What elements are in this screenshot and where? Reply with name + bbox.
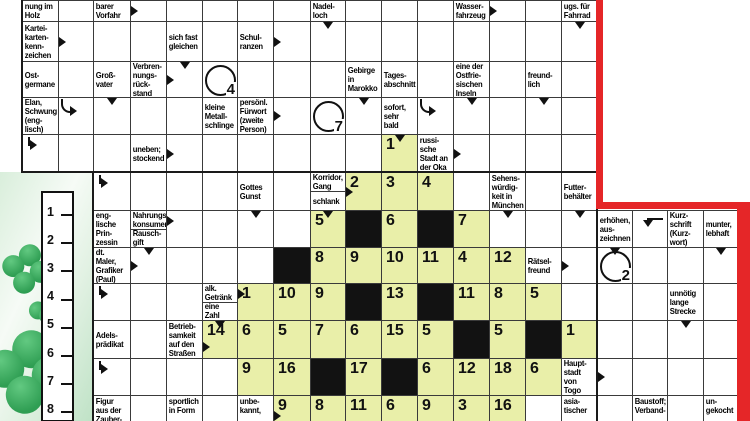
clue-cell: dt. Maler, Grafiker (Paul) (93, 247, 131, 284)
clue-text: unnötig lange Strecke (668, 288, 700, 317)
crossword-puzzle-page: 12345678 nung im Holznachweis- barer Vor… (0, 0, 750, 421)
answer-cell[interactable] (273, 61, 311, 98)
cell-number: 5 (530, 285, 539, 303)
number-cell[interactable]: 6 (345, 320, 382, 359)
cell-number: 9 (315, 285, 324, 303)
clue-cell: Kartei- karten- kenn- zeichen (22, 21, 59, 62)
answer-cell[interactable] (345, 97, 382, 135)
answer-cell[interactable] (417, 0, 454, 22)
answer-cell[interactable] (93, 358, 131, 396)
answer-cell[interactable] (166, 247, 203, 284)
answer-cell[interactable] (417, 97, 454, 135)
clue-text: Korridor, Gang (311, 173, 344, 192)
cell-number: 18 (494, 360, 512, 378)
answer-cell[interactable] (202, 134, 238, 173)
answer-cell[interactable] (632, 283, 668, 321)
answer-cell[interactable] (525, 21, 562, 62)
answer-cell[interactable] (166, 134, 203, 173)
clue-text: freund- lich (526, 70, 558, 90)
answer-cell[interactable] (130, 395, 167, 421)
answer-cell[interactable] (703, 320, 738, 359)
clue-text: Adels- prädikat (94, 330, 126, 350)
answer-cell[interactable] (202, 172, 238, 211)
arrow-right-icon (454, 149, 461, 159)
arrow-down-icon (107, 98, 117, 105)
clue-cell: Tages- abschnitt (381, 61, 418, 98)
clue-cell-split: Nahrungs- konsumentRausch- gift (130, 210, 167, 248)
answer-cell[interactable] (667, 395, 704, 421)
circle-marker-cell[interactable]: 2 (597, 247, 633, 284)
clue-cell: Wasser- fahrzeug (453, 0, 490, 22)
answer-cell[interactable] (703, 283, 738, 321)
arrow-curve-right-icon (61, 99, 83, 118)
clue-text: Rausch- gift (131, 230, 163, 248)
answer-cell[interactable] (130, 0, 167, 22)
clue-cell: Figur aus der Zauber- (93, 395, 131, 421)
answer-cell[interactable] (525, 210, 562, 248)
clue-cell: Rätsel- freund (525, 247, 562, 284)
answer-cell[interactable] (93, 172, 131, 211)
answer-cell[interactable] (166, 358, 203, 396)
answer-cell[interactable] (130, 172, 167, 211)
number-cell[interactable]: 5 (273, 320, 311, 359)
answer-cell[interactable] (237, 0, 274, 22)
answer-cell[interactable] (381, 0, 418, 22)
block-cell (273, 247, 311, 284)
answer-cell[interactable] (489, 97, 526, 135)
cell-number: 6 (386, 212, 395, 230)
answer-cell[interactable] (130, 320, 167, 359)
answer-cell[interactable] (489, 134, 526, 173)
solution-blank-line (61, 326, 72, 329)
cell-number: 9 (350, 249, 359, 267)
clue-text: Nahrungs- konsument (131, 211, 166, 230)
answer-cell[interactable] (632, 247, 668, 284)
answer-cell[interactable] (237, 61, 274, 98)
solution-number: 2 (47, 234, 57, 247)
number-cell[interactable]: 5 (417, 320, 454, 359)
solution-blank-line (61, 410, 72, 413)
block-cell (417, 283, 454, 321)
answer-cell[interactable] (202, 247, 238, 284)
answer-cell[interactable] (381, 21, 418, 62)
answer-cell[interactable] (166, 210, 203, 248)
number-cell[interactable]: 12 (489, 247, 526, 284)
cell-number: 7 (458, 212, 467, 230)
answer-cell[interactable] (489, 210, 526, 248)
arrow-right-icon (274, 37, 281, 47)
number-cell[interactable]: 14 (202, 320, 238, 359)
answer-cell[interactable] (310, 134, 346, 173)
answer-cell[interactable] (453, 134, 490, 173)
clue-text: Rätsel- freund (526, 256, 558, 276)
arrow-right-icon (131, 6, 138, 16)
arrow-down-icon (575, 211, 585, 218)
answer-cell[interactable] (273, 172, 311, 211)
arrow-right-icon (167, 216, 174, 226)
answer-cell[interactable] (22, 134, 59, 173)
clue-text: Groß- vater (94, 70, 126, 90)
answer-cell[interactable] (561, 134, 598, 173)
circle-number: 7 (334, 119, 344, 134)
circle-marker-cell[interactable]: 7 (310, 97, 346, 135)
answer-cell[interactable] (561, 97, 598, 135)
clue-text: Ost- germane (23, 70, 56, 90)
cell-number: 5 (494, 322, 503, 340)
clue-cell: kleine Metall- schlinge (202, 97, 238, 135)
clue-text: sportlich in Form (167, 396, 200, 416)
answer-cell[interactable] (130, 97, 167, 135)
answer-cell[interactable] (58, 134, 94, 173)
arrow-down-icon (323, 211, 333, 218)
answer-cell[interactable] (202, 358, 238, 396)
answer-cell[interactable] (273, 97, 311, 135)
clue-text: russi- sche Stadt an der Oka (418, 135, 450, 173)
answer-cell[interactable] (525, 0, 562, 22)
answer-cell[interactable] (130, 283, 167, 321)
answer-cell[interactable] (417, 61, 454, 98)
number-cell[interactable]: 1 (561, 320, 598, 359)
cell-number: 5 (422, 322, 431, 340)
answer-cell[interactable] (273, 0, 311, 22)
number-cell[interactable]: 6 (417, 358, 454, 396)
answer-cell[interactable] (237, 210, 274, 248)
cell-number: 11 (458, 285, 475, 303)
answer-cell[interactable] (561, 247, 598, 284)
answer-cell[interactable] (130, 21, 167, 62)
answer-cell[interactable] (632, 210, 668, 248)
arrow-down-icon (716, 248, 726, 255)
cell-number: 8 (315, 397, 324, 415)
clue-cell: munter, lebhaft (703, 210, 738, 248)
clue-cell: Kurz- schrift (Kurz- wort) (667, 210, 704, 248)
answer-cell[interactable] (597, 358, 633, 396)
solution-number: 7 (47, 375, 57, 388)
answer-cell[interactable] (166, 61, 203, 98)
clue-text: schlank (311, 196, 342, 207)
number-cell[interactable]: 5 (489, 320, 526, 359)
answer-cell[interactable] (597, 283, 633, 321)
number-cell[interactable]: 9 (310, 283, 346, 321)
answer-cell[interactable] (667, 358, 704, 396)
clue-text: Baustoff; Verband- (633, 396, 667, 416)
cell-number: 8 (315, 249, 324, 267)
answer-cell[interactable] (489, 61, 526, 98)
number-cell[interactable]: 7 (310, 320, 346, 359)
arrow-right-icon (167, 75, 174, 85)
clue-cell: Haupt- stadt von Togo (561, 358, 598, 396)
answer-cell[interactable] (58, 61, 94, 98)
answer-cell[interactable] (561, 21, 598, 62)
number-cell[interactable]: 6 (237, 320, 274, 359)
clue-cell: eine der Ostfrie- sischen Inseln (453, 61, 490, 98)
answer-cell[interactable] (237, 134, 274, 173)
clue-cell: unnötig lange Strecke (667, 283, 704, 321)
solution-item: 5 (43, 315, 72, 331)
number-cell[interactable]: 10 (273, 283, 311, 321)
block-cell (381, 358, 418, 396)
answer-cell[interactable] (667, 320, 704, 359)
cell-number: 12 (458, 360, 476, 378)
clue-cell: Baustoff; Verband- (632, 395, 668, 421)
answer-cell[interactable] (525, 134, 562, 173)
answer-cell[interactable] (130, 247, 167, 284)
cell-number: 15 (386, 322, 404, 340)
solution-item: 8 (43, 399, 72, 415)
cell-number: 6 (350, 322, 359, 340)
cell-number: 6 (530, 360, 539, 378)
clue-text: Kurz- schrift (Kurz- wort) (668, 210, 700, 248)
answer-cell[interactable] (703, 358, 738, 396)
answer-cell[interactable] (345, 134, 382, 173)
solution-item: 7 (43, 371, 72, 387)
solution-number: 4 (47, 290, 57, 303)
arrow-right-icon (598, 372, 605, 382)
answer-cell[interactable] (489, 0, 526, 22)
clue-text: uneben; stockend (131, 144, 165, 164)
answer-cell[interactable] (130, 358, 167, 396)
clue-cell-split: Korridor, Gangschlank (310, 172, 346, 211)
clue-cell: Gottes Gunst (237, 172, 274, 211)
answer-cell[interactable] (632, 320, 668, 359)
cell-number: 16 (494, 397, 512, 415)
answer-cell[interactable] (202, 0, 238, 22)
solution-blank-line (61, 213, 72, 216)
clue-text: Sehens- würdig- keit in München (490, 173, 524, 211)
answer-cell[interactable] (166, 0, 203, 22)
number-cell[interactable]: 11 (417, 247, 454, 284)
solution-blank-line (61, 269, 72, 272)
arrow-right-icon (274, 111, 281, 121)
number-cell[interactable]: 16 (489, 395, 526, 421)
number-cell[interactable]: 16 (273, 358, 311, 396)
answer-cell[interactable] (417, 21, 454, 62)
cell-number: 16 (278, 360, 296, 378)
cell-number: 7 (315, 322, 324, 340)
solution-number: 5 (47, 318, 57, 331)
answer-cell[interactable] (525, 395, 562, 421)
number-cell[interactable]: 17 (345, 358, 382, 396)
answer-cell[interactable] (93, 21, 131, 62)
answer-cell[interactable] (453, 21, 490, 62)
answer-cell[interactable] (58, 97, 94, 135)
number-cell[interactable]: 7 (453, 210, 490, 248)
answer-cell[interactable] (58, 0, 94, 22)
answer-cell[interactable] (703, 247, 738, 284)
answer-cell[interactable] (166, 283, 203, 321)
arrow-down-icon (215, 321, 225, 328)
arrow-right-icon (490, 6, 497, 16)
page-border-red-vertical (596, 0, 603, 209)
clue-cell: Adels- prädikat (93, 320, 131, 359)
answer-cell[interactable] (525, 97, 562, 135)
clue-text: un- gekocht (704, 396, 734, 416)
block-cell (417, 210, 454, 248)
answer-cell[interactable] (345, 0, 382, 22)
number-cell[interactable]: 10 (381, 247, 418, 284)
answer-cell[interactable] (273, 210, 311, 248)
cell-number: 12 (494, 249, 512, 267)
clue-text: eine Zahl (203, 303, 234, 321)
solution-blank-line (61, 382, 72, 385)
number-cell[interactable]: 15 (381, 320, 418, 359)
number-cell[interactable]: 9 (417, 395, 454, 421)
answer-cell[interactable] (202, 210, 238, 248)
clue-text: dt. Maler, Grafiker (Paul) (94, 247, 126, 284)
answer-cell[interactable] (489, 21, 526, 62)
solution-blank-line (61, 354, 72, 357)
clue-cell: Futter- behälter (561, 172, 598, 211)
arrow-right-icon (562, 261, 569, 271)
answer-cell[interactable] (632, 358, 668, 396)
arrow-down-icon (610, 248, 620, 255)
answer-cell[interactable] (561, 61, 598, 98)
arrow-right-icon (131, 261, 138, 271)
clue-cell: Nadel- loch (310, 0, 346, 22)
number-cell[interactable]: 6 (381, 210, 418, 248)
number-cell[interactable]: 11 (345, 395, 382, 421)
number-cell[interactable]: 6 (525, 358, 562, 396)
clue-text: Wasser- fahrzeug (454, 1, 486, 21)
solution-number: 6 (47, 347, 57, 360)
number-cell[interactable]: 13 (381, 283, 418, 321)
answer-cell[interactable] (202, 395, 238, 421)
arrow-right-icon (346, 187, 353, 197)
clue-cell: Gebirge in Marokko (345, 61, 382, 98)
circle-number: 2 (621, 268, 631, 283)
clue-cell: Ost- germane (22, 61, 59, 98)
block-cell (345, 283, 382, 321)
cell-number: 13 (386, 285, 404, 303)
cell-number: 6 (422, 360, 431, 378)
number-cell[interactable]: 8 (489, 283, 526, 321)
number-cell[interactable]: 11 (453, 283, 490, 321)
arrow-down-icon (144, 248, 154, 255)
number-cell[interactable]: 4 (417, 172, 454, 211)
answer-cell[interactable] (93, 134, 131, 173)
number-cell[interactable]: 18 (489, 358, 526, 396)
number-cell[interactable]: 5 (310, 210, 346, 248)
answer-cell[interactable] (273, 134, 311, 173)
block-cell (310, 358, 346, 396)
clue-text: nung im Holz (23, 1, 55, 21)
solution-blank-line (61, 241, 72, 244)
arrow-curve-right-icon (420, 99, 442, 118)
clue-text: sich fast gleichen (167, 32, 199, 52)
cell-number: 6 (242, 322, 251, 340)
clue-cell: asia- tischer (561, 395, 598, 421)
solution-item: 1 (43, 202, 72, 218)
cell-number: 9 (242, 360, 251, 378)
number-cell[interactable]: 4 (453, 247, 490, 284)
block-cell (525, 320, 562, 359)
arrow-bent-right-icon (97, 286, 113, 301)
answer-cell[interactable] (166, 172, 203, 211)
clue-text: Futter- behälter (562, 182, 594, 202)
answer-cell[interactable] (597, 395, 633, 421)
number-cell[interactable]: 9 (273, 395, 311, 421)
clue-text: Kartei- karten- kenn- zeichen (23, 23, 55, 61)
number-cell[interactable]: 2 (345, 172, 382, 211)
circle-marker-cell[interactable]: 4 (202, 61, 238, 98)
clue-cell: nung im Holz (22, 0, 59, 22)
number-cell[interactable]: 8 (310, 247, 346, 284)
clue-cell: persönl. Fürwort (zweite Person) (237, 97, 274, 135)
clue-text: kleine Metall- schlinge (203, 102, 235, 131)
answer-cell[interactable] (166, 97, 203, 135)
solution-number: 3 (47, 262, 57, 275)
clue-text: Haupt- stadt von Togo (562, 358, 594, 396)
cell-number: 11 (422, 249, 439, 267)
answer-cell[interactable] (597, 320, 633, 359)
number-cell[interactable]: 9 (237, 358, 274, 396)
answer-cell[interactable] (310, 61, 346, 98)
number-cell[interactable]: 3 (453, 395, 490, 421)
clue-cell: nachweis- barer Vorfahr (93, 0, 131, 22)
answer-cell[interactable] (58, 21, 94, 62)
cell-number: 1 (566, 322, 575, 340)
answer-cell[interactable] (561, 283, 598, 321)
cell-number: 10 (386, 249, 404, 267)
answer-cell[interactable] (525, 172, 562, 211)
arrow-down-icon (539, 98, 549, 105)
clue-cell: russi- sche Stadt an der Oka (417, 134, 454, 173)
number-cell[interactable]: 5 (525, 283, 562, 321)
answer-cell[interactable] (453, 97, 490, 135)
answer-cell[interactable] (310, 21, 346, 62)
answer-cell[interactable] (93, 97, 131, 135)
arrow-down-icon (575, 22, 585, 29)
number-cell[interactable]: 1 (237, 283, 274, 321)
clue-text: Gottes Gunst (238, 182, 270, 202)
block-cell (453, 320, 490, 359)
solution-number: 8 (47, 403, 57, 416)
number-cell[interactable]: 3 (381, 172, 418, 211)
clue-text: erhöhen, aus- zeichnen (598, 215, 631, 244)
arrow-right-icon (59, 37, 66, 47)
arrow-right-icon (274, 411, 281, 421)
clue-cell: sich fast gleichen (166, 21, 203, 62)
answer-cell[interactable] (561, 210, 598, 248)
clue-text: unbe- kannt, (238, 396, 270, 416)
number-cell[interactable]: 9 (345, 247, 382, 284)
clue-cell: un- gekocht (703, 395, 738, 421)
clue-cell: sofort, sehr bald (381, 97, 418, 135)
number-cell[interactable]: 6 (381, 395, 418, 421)
arrow-bent-right-icon (26, 137, 42, 152)
answer-cell[interactable] (93, 283, 131, 321)
clue-text: Verbren- nungs- rück- stand (131, 61, 163, 98)
arrow-down-icon (251, 211, 261, 218)
answer-cell[interactable] (273, 21, 311, 62)
clue-cell: Betrieb- samkeit auf den Straßen (166, 320, 203, 359)
answer-cell[interactable] (202, 21, 238, 62)
number-cell[interactable]: 8 (310, 395, 346, 421)
solution-blank-line (61, 298, 72, 301)
number-cell[interactable]: 1 (381, 134, 418, 173)
cell-number: 5 (278, 322, 287, 340)
answer-cell[interactable] (345, 21, 382, 62)
answer-cell[interactable] (237, 247, 274, 284)
cell-number: 17 (350, 360, 368, 378)
number-cell[interactable]: 12 (453, 358, 490, 396)
answer-cell[interactable] (453, 172, 490, 211)
clue-cell: erhöhen, aus- zeichnen (597, 210, 633, 248)
answer-cell[interactable] (667, 247, 704, 284)
clue-text: Nadel- loch (311, 1, 342, 21)
arrow-down-icon (467, 98, 477, 105)
solution-item: 2 (43, 230, 72, 246)
